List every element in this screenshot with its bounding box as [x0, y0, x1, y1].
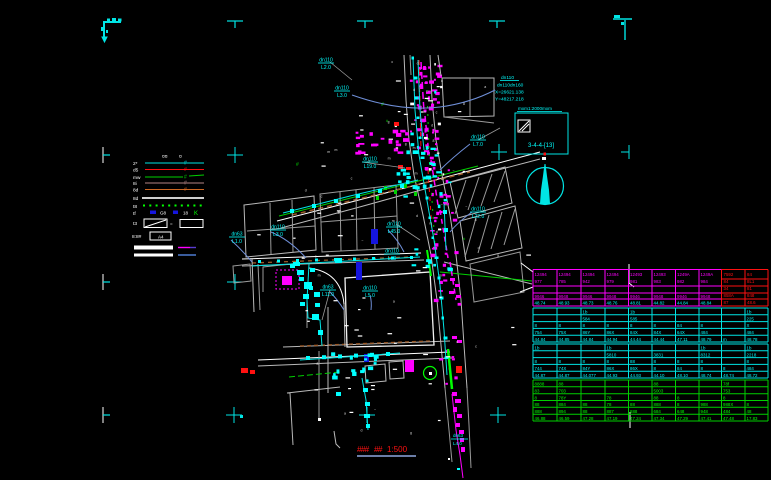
svg-text:dn110dn160: dn110dn160 — [497, 83, 524, 89]
svg-text:=: = — [170, 221, 173, 226]
svg-text:1:500: 1:500 — [387, 445, 408, 454]
svg-text:48.73: 48.73 — [583, 301, 595, 306]
svg-text:c: c — [436, 110, 438, 114]
svg-text:m: m — [327, 150, 330, 154]
svg-text:mw: mw — [133, 176, 141, 181]
svg-text:46.59: 46.59 — [559, 416, 571, 421]
svg-text:88: 88 — [654, 395, 659, 400]
svg-text:754: 754 — [535, 330, 543, 335]
svg-text:mxm1:2000mxm: mxm1:2000mxm — [518, 106, 552, 111]
svg-text:18: 18 — [183, 211, 189, 216]
svg-text:86X: 86X — [607, 366, 615, 371]
svg-text:3-4-4-[13]: 3-4-4-[13] — [528, 143, 554, 149]
svg-text:78: 78 — [607, 395, 612, 400]
svg-text:c: c — [391, 60, 393, 64]
svg-text:74X: 74X — [559, 366, 567, 371]
svg-text:L4.0: L4.0 — [453, 441, 462, 446]
svg-text:8: 8 — [433, 139, 435, 143]
svg-text:84: 84 — [677, 323, 682, 328]
svg-text:48.10: 48.10 — [677, 373, 689, 378]
svg-text:744: 744 — [535, 366, 543, 371]
svg-text:¤: ¤ — [179, 154, 182, 160]
svg-text:2218: 2218 — [747, 352, 757, 357]
svg-text:8: 8 — [463, 102, 465, 106]
svg-text:44.44: 44.44 — [630, 337, 642, 342]
svg-text:8312: 8312 — [701, 352, 711, 357]
svg-text:###: ### — [357, 444, 369, 454]
svg-text:48: 48 — [747, 409, 752, 414]
svg-text:8: 8 — [405, 142, 407, 146]
svg-text:48.74: 48.74 — [535, 301, 547, 306]
svg-text:9948: 9948 — [701, 294, 711, 299]
svg-text:78: 78 — [607, 402, 612, 407]
svg-text:44.84: 44.84 — [535, 337, 547, 342]
svg-text:888: 888 — [535, 409, 543, 414]
svg-text:a: a — [344, 412, 346, 416]
svg-text:c: c — [475, 345, 477, 349]
svg-text:88: 88 — [583, 409, 588, 414]
svg-text:~: ~ — [432, 99, 434, 103]
svg-text:d: d — [416, 214, 418, 218]
svg-text:m: m — [423, 110, 426, 114]
svg-text:648: 648 — [677, 409, 685, 414]
svg-text:Y=48217.218: Y=48217.218 — [495, 97, 524, 103]
svg-text:#: # — [296, 162, 299, 168]
svg-text:d: d — [441, 79, 443, 83]
svg-text:~: ~ — [465, 205, 467, 209]
svg-text:~: ~ — [374, 408, 376, 412]
svg-text:86X: 86X — [630, 366, 638, 371]
svg-text:1249A: 1249A — [701, 272, 714, 277]
svg-text:848: 848 — [747, 293, 755, 298]
svg-text:m: m — [335, 148, 338, 152]
svg-text:8: 8 — [317, 362, 319, 366]
svg-text:9948: 9948 — [559, 294, 569, 299]
svg-text:d: d — [305, 189, 307, 193]
svg-text:c: c — [315, 255, 317, 259]
svg-text:888: 888 — [654, 402, 662, 407]
svg-text:Ln8: Ln8 — [388, 256, 397, 262]
svg-text:44.94: 44.94 — [607, 337, 619, 342]
svg-text:#: # — [184, 167, 187, 173]
svg-text:d: d — [431, 123, 433, 127]
svg-text:44.84: 44.84 — [583, 337, 595, 342]
svg-text:d: d — [436, 230, 438, 234]
svg-text:44.84: 44.84 — [677, 301, 689, 306]
svg-text:44.85: 44.85 — [559, 337, 571, 342]
svg-text:48.93: 48.93 — [559, 301, 571, 306]
svg-text:888: 888 — [630, 409, 638, 414]
svg-text:47.29: 47.29 — [677, 416, 689, 421]
svg-text:44.10: 44.10 — [654, 373, 666, 378]
svg-text:9946: 9946 — [535, 294, 545, 299]
svg-text:8:8#: 8:8# — [132, 234, 142, 240]
svg-text:81: 81 — [747, 286, 752, 291]
svg-text:977: 977 — [535, 279, 543, 284]
svg-text:12493: 12493 — [630, 272, 643, 277]
svg-text:X: X — [747, 323, 750, 328]
svg-text:t3: t3 — [133, 221, 137, 227]
svg-text:48.6: 48.6 — [747, 300, 756, 305]
svg-text:~: ~ — [453, 168, 455, 172]
svg-text:L7.0: L7.0 — [473, 142, 483, 148]
svg-text:75X: 75X — [559, 330, 567, 335]
svg-text:7592: 7592 — [724, 272, 734, 277]
svg-text:84: 84 — [724, 279, 729, 284]
svg-text:m: m — [429, 221, 432, 225]
svg-text:L11.0: L11.0 — [322, 292, 334, 298]
svg-text:585: 585 — [630, 316, 638, 321]
svg-text:d: d — [413, 88, 415, 92]
svg-text:48.81: 48.81 — [630, 301, 642, 306]
svg-text:88: 88 — [583, 402, 588, 407]
svg-text:L5.0: L5.0 — [365, 293, 375, 299]
svg-text:48.78: 48.78 — [747, 337, 759, 342]
svg-text:988: 988 — [701, 402, 709, 407]
svg-text:484: 484 — [747, 330, 755, 335]
svg-text:dn63: dn63 — [453, 433, 464, 438]
svg-text:5003: 5003 — [654, 388, 664, 393]
svg-text:48.74: 48.74 — [723, 373, 735, 378]
svg-text:a: a — [497, 253, 499, 257]
svg-text:47.48: 47.48 — [723, 416, 735, 421]
svg-text:m: m — [415, 172, 418, 176]
svg-text:884: 884 — [559, 402, 567, 407]
svg-text:88: 88 — [630, 402, 635, 407]
svg-text:684: 684 — [654, 409, 662, 414]
svg-text:#: # — [184, 161, 187, 167]
svg-text:8: 8 — [388, 120, 390, 124]
svg-text:9948: 9948 — [654, 294, 664, 299]
svg-text:m: m — [388, 157, 391, 161]
svg-text:L2.0: L2.0 — [321, 65, 331, 71]
svg-text:47.24: 47.24 — [630, 416, 642, 421]
svg-text:64X: 64X — [677, 330, 685, 335]
svg-text:44.077: 44.077 — [583, 373, 597, 378]
svg-text:83: 83 — [535, 388, 540, 393]
svg-text:8: 8 — [338, 211, 340, 215]
svg-text:8L1: 8L1 — [747, 279, 755, 284]
svg-text:d: d — [417, 62, 419, 66]
svg-text:983: 983 — [654, 279, 662, 284]
svg-text:48.76: 48.76 — [607, 301, 619, 306]
svg-text:703: 703 — [559, 388, 567, 393]
svg-text:9946: 9946 — [583, 294, 593, 299]
svg-text:L19.0: L19.0 — [364, 164, 377, 170]
svg-text:~: ~ — [430, 180, 432, 184]
svg-text:44.93: 44.93 — [607, 373, 619, 378]
svg-text:12494: 12494 — [559, 272, 572, 277]
svg-text:a: a — [484, 85, 486, 89]
svg-text:753: 753 — [723, 388, 731, 393]
svg-text:88: 88 — [630, 359, 635, 364]
svg-text:46.88: 46.88 — [535, 416, 547, 421]
svg-text:887: 887 — [607, 409, 615, 414]
svg-text:894: 894 — [559, 409, 567, 414]
svg-text:1b: 1b — [583, 310, 588, 315]
svg-text:84X: 84X — [630, 330, 638, 335]
svg-text:5810: 5810 — [607, 352, 617, 357]
svg-text:#: # — [184, 181, 187, 187]
svg-text:78f: 78f — [723, 382, 730, 387]
svg-text:d5: d5 — [133, 168, 139, 174]
svg-text:9946: 9946 — [630, 294, 640, 299]
svg-text:44.87: 44.87 — [535, 373, 547, 378]
svg-text:47.28: 47.28 — [583, 416, 595, 421]
svg-text:47.34: 47.34 — [654, 416, 666, 421]
svg-text:858A: 858A — [724, 293, 734, 298]
svg-text:L1.0: L1.0 — [232, 239, 242, 245]
svg-text:8888: 8888 — [535, 382, 545, 387]
svg-text:~: ~ — [361, 239, 363, 243]
svg-text:44.82: 44.82 — [654, 301, 666, 306]
svg-text:2*: 2* — [133, 161, 138, 167]
svg-text:8d: 8d — [133, 196, 139, 202]
svg-text:48.79: 48.79 — [701, 337, 713, 342]
svg-text:a: a — [393, 299, 395, 303]
svg-text:981: 981 — [630, 279, 638, 284]
svg-text:47.11: 47.11 — [677, 337, 688, 342]
svg-text:d: d — [478, 246, 480, 250]
svg-text:1249A: 1249A — [677, 272, 690, 277]
svg-text:47.19: 47.19 — [607, 416, 619, 421]
svg-text:17.83: 17.83 — [747, 416, 759, 421]
svg-text:44.87: 44.87 — [559, 373, 571, 378]
svg-text:1b: 1b — [701, 346, 706, 351]
svg-text:484: 484 — [723, 409, 731, 414]
svg-text:t8: t8 — [133, 204, 137, 210]
svg-text:L3.0: L3.0 — [273, 232, 283, 238]
svg-text:9948: 9948 — [607, 294, 617, 299]
svg-text:785: 785 — [559, 279, 567, 284]
svg-text:d: d — [456, 340, 458, 344]
svg-text:34: 34 — [724, 286, 729, 291]
svg-text:1b: 1b — [747, 346, 752, 351]
svg-text:1b: 1b — [630, 310, 635, 315]
svg-text:m: m — [723, 337, 727, 342]
svg-text:984: 984 — [701, 279, 709, 284]
svg-text:#: # — [381, 102, 384, 108]
svg-text:47.41: 47.41 — [701, 416, 713, 421]
svg-text:L22.0: L22.0 — [472, 214, 485, 220]
svg-text:c: c — [351, 177, 353, 181]
svg-text:484: 484 — [747, 366, 755, 371]
svg-text:A4: A4 — [158, 235, 164, 240]
svg-text:48.74: 48.74 — [701, 373, 713, 378]
svg-text:84: 84 — [677, 366, 682, 371]
svg-text:G8: G8 — [160, 211, 167, 216]
svg-text:8: 8 — [410, 431, 412, 435]
svg-text:m: m — [439, 274, 442, 278]
svg-text:86Y: 86Y — [583, 330, 591, 335]
svg-text:K: K — [194, 211, 198, 217]
svg-text:948: 948 — [701, 409, 709, 414]
svg-text:48.72: 48.72 — [747, 373, 759, 378]
svg-text:12494: 12494 — [607, 272, 620, 277]
svg-text:8d: 8d — [133, 188, 139, 194]
svg-text:X=26621.138: X=26621.138 — [495, 90, 524, 96]
svg-text:~: ~ — [441, 203, 443, 207]
svg-text:1b: 1b — [747, 310, 752, 315]
svg-text:L3.0: L3.0 — [337, 93, 347, 99]
svg-text:484: 484 — [701, 330, 709, 335]
svg-text:L45.0: L45.0 — [388, 229, 401, 235]
svg-text:¤¤: ¤¤ — [162, 154, 168, 160]
svg-text:##: ## — [374, 444, 383, 454]
svg-text:88: 88 — [654, 382, 659, 387]
svg-text:225: 225 — [747, 316, 755, 321]
svg-text:988X: 988X — [723, 402, 733, 407]
svg-text:88: 88 — [559, 382, 564, 387]
svg-text:c: c — [321, 194, 323, 198]
svg-text:88: 88 — [535, 402, 540, 407]
svg-text:584: 584 — [583, 316, 591, 321]
svg-text:m: m — [441, 177, 444, 181]
svg-text:m: m — [318, 273, 321, 277]
svg-text:44.93: 44.93 — [630, 373, 642, 378]
svg-text:d: d — [361, 428, 363, 432]
svg-text:942: 942 — [583, 279, 591, 284]
svg-text:9946: 9946 — [677, 294, 687, 299]
svg-text:#: # — [184, 187, 187, 193]
svg-text:86X: 86X — [607, 330, 615, 335]
svg-text:12494: 12494 — [535, 272, 548, 277]
svg-text:m: m — [413, 146, 416, 150]
svg-text:979: 979 — [607, 279, 615, 284]
svg-text:1b: 1b — [607, 346, 612, 351]
svg-text:982: 982 — [677, 279, 685, 284]
svg-text:8i: 8i — [133, 181, 137, 187]
svg-text:44.44: 44.44 — [654, 337, 666, 342]
svg-text:84: 84 — [747, 272, 752, 277]
svg-text:84Y: 84Y — [583, 366, 591, 371]
svg-text:1b: 1b — [535, 346, 540, 351]
svg-text:78Y: 78Y — [559, 395, 567, 400]
svg-text:87: 87 — [724, 300, 729, 305]
svg-text:84X: 84X — [654, 330, 662, 335]
svg-text:48.84: 48.84 — [701, 301, 713, 306]
svg-text:3831: 3831 — [654, 352, 664, 357]
svg-text:12494: 12494 — [583, 272, 596, 277]
svg-text:12493: 12493 — [654, 272, 667, 277]
